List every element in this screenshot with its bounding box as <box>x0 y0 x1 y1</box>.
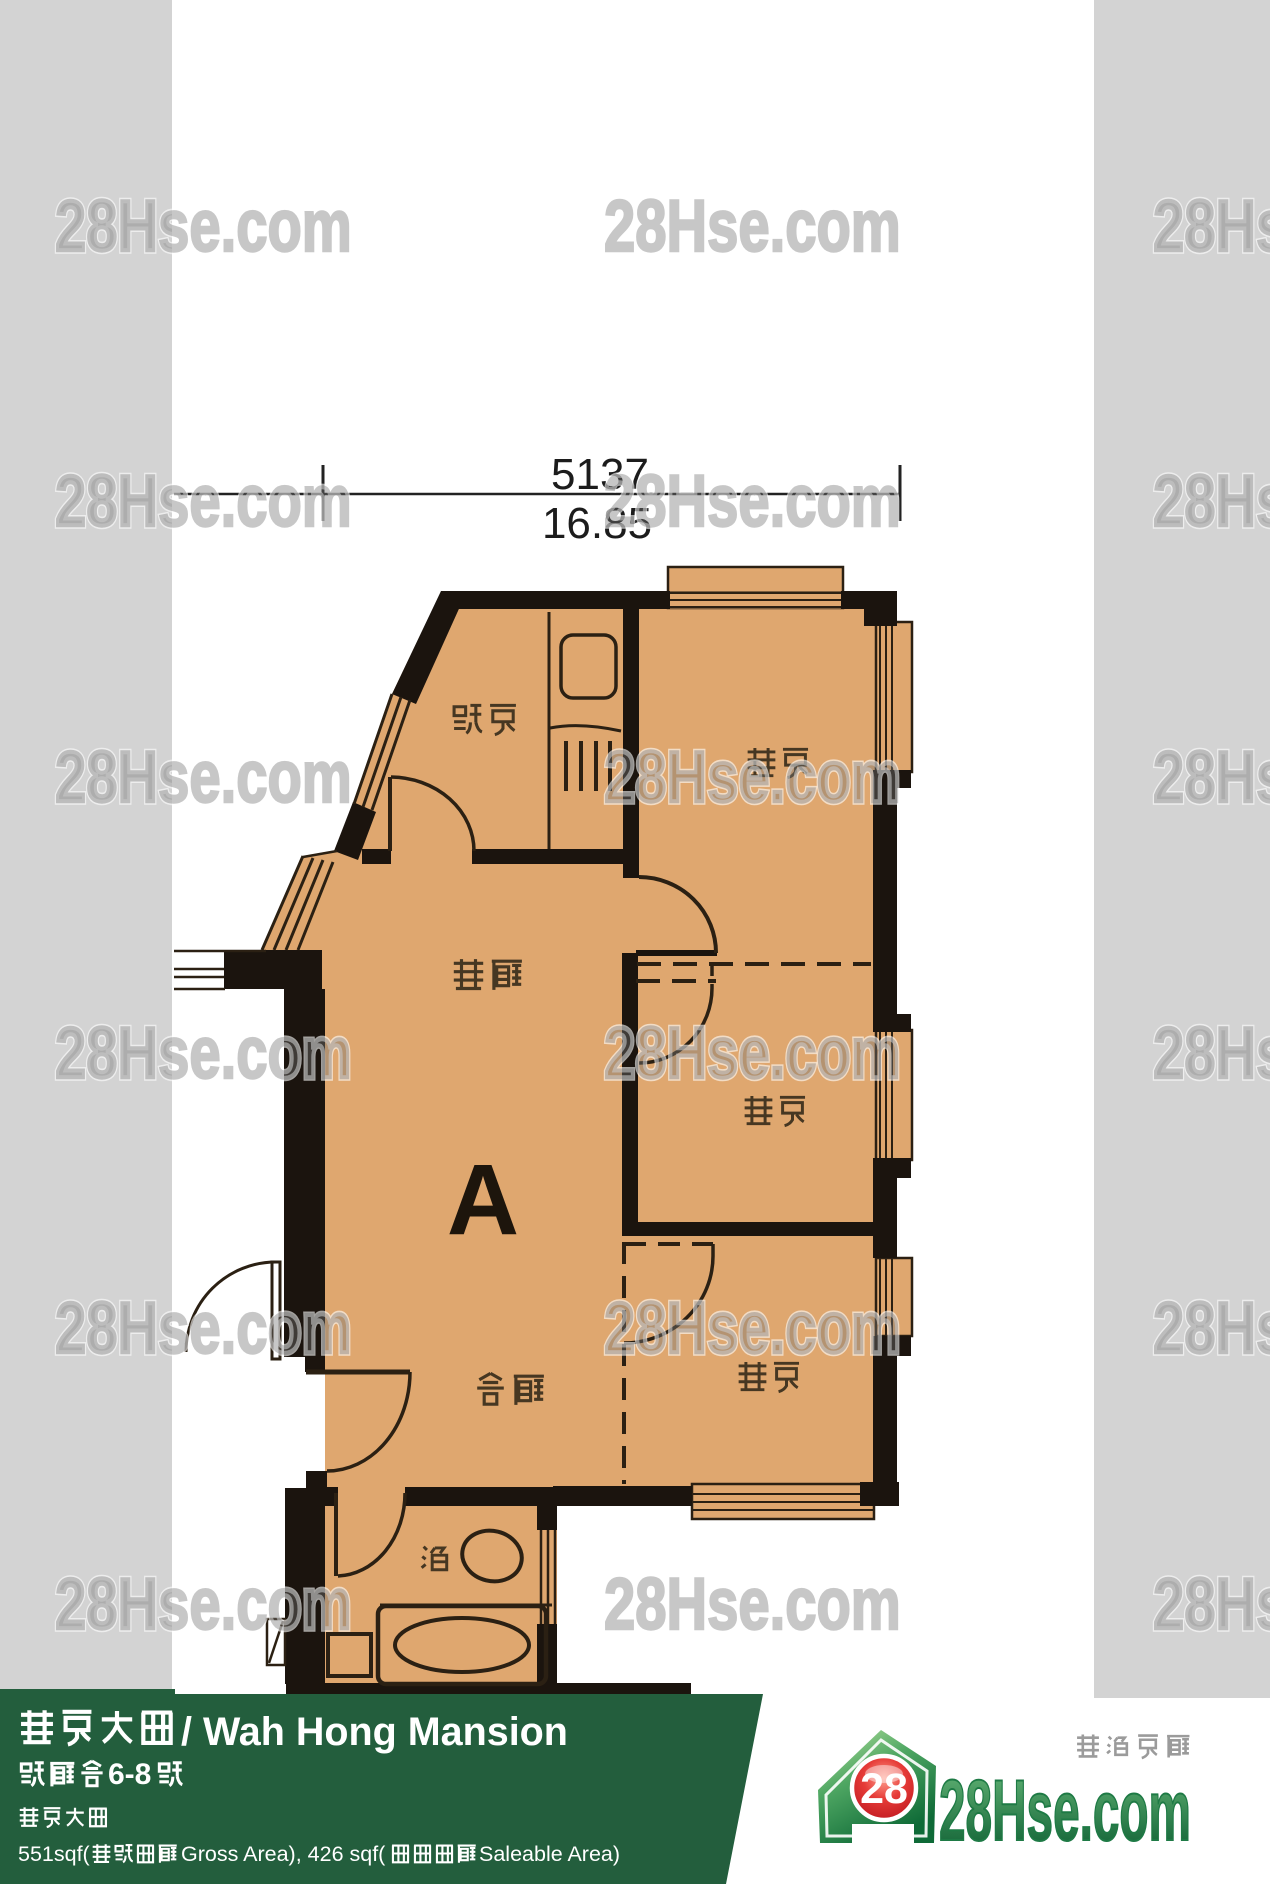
svg-text:28Hse.com: 28Hse.com <box>604 736 901 818</box>
svg-text:28Hse.com: 28Hse.com <box>1153 1287 1270 1369</box>
svg-text:Gross Area), 426 sqf(: Gross Area), 426 sqf( <box>181 1842 386 1866</box>
svg-text:28Hse.com: 28Hse.com <box>604 1287 901 1369</box>
svg-text:28Hse.com: 28Hse.com <box>1153 460 1270 542</box>
svg-text:28Hse.com: 28Hse.com <box>55 736 352 818</box>
svg-text:6-8: 6-8 <box>108 1758 151 1791</box>
svg-text:28Hse.com: 28Hse.com <box>55 1012 352 1094</box>
svg-text:28: 28 <box>860 1765 908 1813</box>
svg-text:28Hse.com: 28Hse.com <box>939 1762 1191 1858</box>
svg-text:28Hse.com: 28Hse.com <box>1153 185 1270 267</box>
svg-text:28Hse.com: 28Hse.com <box>1153 1012 1270 1094</box>
svg-text:/ Wah Hong Mansion: / Wah Hong Mansion <box>181 1710 568 1754</box>
svg-text:28Hse.com: 28Hse.com <box>604 1563 901 1645</box>
svg-text:28Hse.com: 28Hse.com <box>55 185 352 267</box>
svg-text:28Hse.com: 28Hse.com <box>1153 1563 1270 1645</box>
svg-text:28Hse.com: 28Hse.com <box>55 1563 352 1645</box>
svg-text:28Hse.com: 28Hse.com <box>604 460 901 542</box>
svg-text:28Hse.com: 28Hse.com <box>604 185 901 267</box>
svg-text:28Hse.com: 28Hse.com <box>604 1012 901 1094</box>
svg-text:28Hse.com: 28Hse.com <box>1153 736 1270 818</box>
svg-text:28Hse.com: 28Hse.com <box>55 460 352 542</box>
svg-text:Saleable Area): Saleable Area) <box>479 1842 620 1866</box>
svg-text:551sqf(: 551sqf( <box>18 1842 91 1866</box>
svg-text:28Hse.com: 28Hse.com <box>55 1287 352 1369</box>
svg-text:A: A <box>447 1144 519 1256</box>
